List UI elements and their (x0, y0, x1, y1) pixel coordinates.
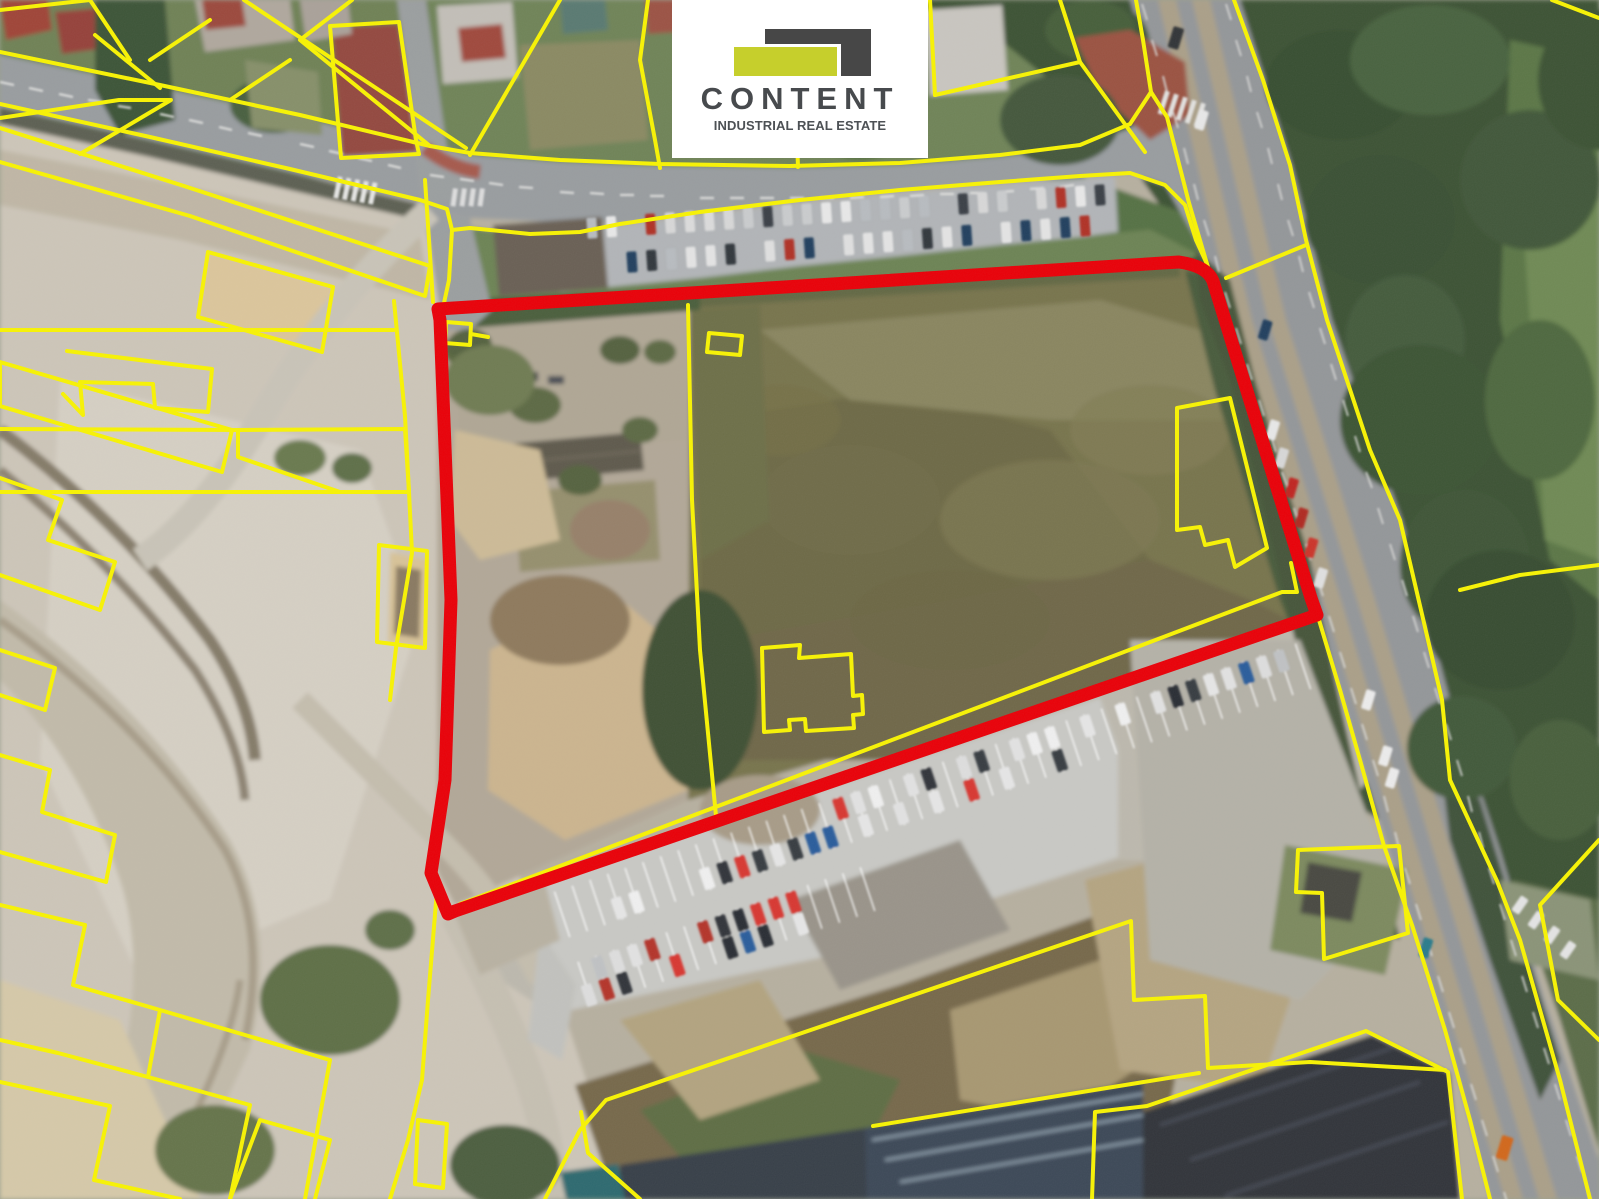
svg-text:INDUSTRIAL REAL ESTATE: INDUSTRIAL REAL ESTATE (714, 118, 887, 133)
svg-text:CONTENT: CONTENT (701, 81, 900, 116)
